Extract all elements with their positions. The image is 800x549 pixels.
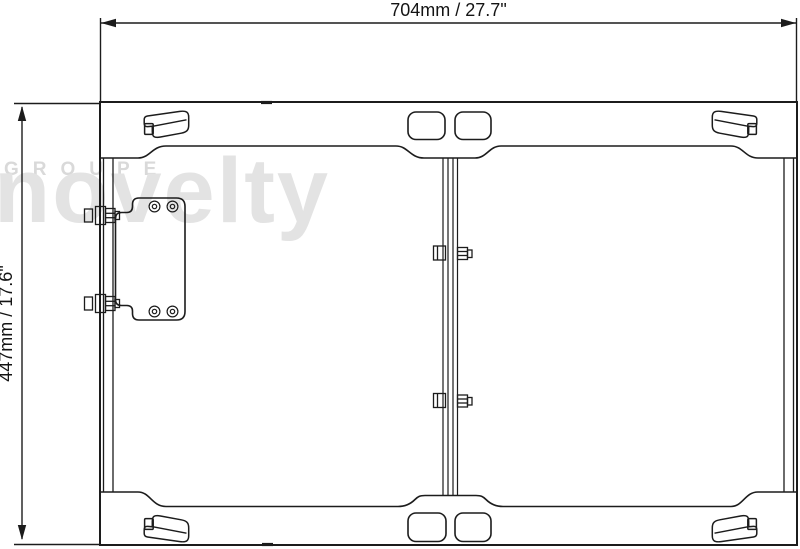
arrowhead-down xyxy=(18,525,26,540)
top-rail-inner-edge xyxy=(101,146,796,158)
latch-bottom-right xyxy=(712,516,757,542)
top-cutout-right xyxy=(455,112,491,140)
led-panel-rear-drawing xyxy=(0,0,800,549)
center-seam-lines xyxy=(443,158,458,496)
bracket-bolt-upper xyxy=(85,207,120,225)
bracket-screw-top-right xyxy=(167,201,178,212)
mounting-bracket-plate xyxy=(116,198,186,320)
top-handle-cutouts xyxy=(408,112,491,140)
right-column-profile xyxy=(784,158,794,492)
technical-drawing-canvas: GROUPE novelty xyxy=(0,0,800,549)
bottom-handle-cutouts xyxy=(408,513,491,542)
bottom-cutout-left xyxy=(408,513,446,542)
bottom-cutout-right xyxy=(455,513,491,542)
arrowhead-up xyxy=(18,106,26,121)
bracket-bolt-lower xyxy=(85,295,120,313)
bracket-screw-top-left xyxy=(149,201,160,212)
bracket-screw-bottom-left xyxy=(149,306,160,317)
bracket-screw-bottom-right xyxy=(167,306,178,317)
width-dimension-label: 704mm / 27.7" xyxy=(100,0,797,21)
width-dimension-lines xyxy=(101,18,797,101)
latch-bottom-left xyxy=(144,516,189,542)
latch-top-right xyxy=(712,111,757,137)
top-cutout-left xyxy=(408,112,445,140)
latch-top-left xyxy=(144,111,189,137)
height-dimension-label: 447mm / 17.6" xyxy=(0,102,18,545)
height-dimension-lines xyxy=(14,104,100,545)
